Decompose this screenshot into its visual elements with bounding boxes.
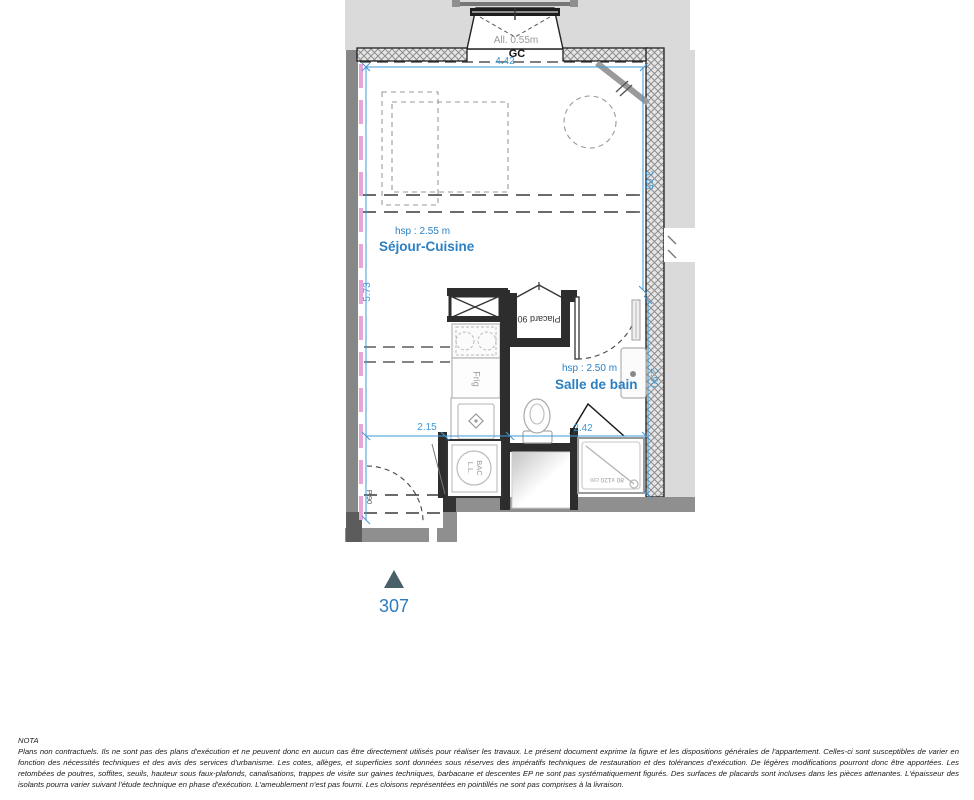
dim-height-left: 5.73 bbox=[362, 282, 373, 302]
placard-label: Placard 90 bbox=[517, 314, 560, 324]
entrance-triangle-marker bbox=[384, 570, 404, 588]
washer-jamb bbox=[438, 432, 447, 498]
shower-jamb bbox=[570, 428, 578, 510]
nota-block: NOTA Plans non contractuels. Ils ne sont… bbox=[18, 736, 959, 791]
nota-body: Plans non contractuels. Ils ne sont pas … bbox=[18, 747, 959, 791]
sejour-height-label: hsp : 2.55 m bbox=[395, 226, 450, 237]
window-sill-label: All. 0.55m bbox=[494, 35, 538, 46]
shower-size-label: 80 x120 cm bbox=[590, 476, 624, 483]
floor-plan-drawing: Frig Placard 90 BACL.L. 80 x120 cm P.90 bbox=[0, 0, 974, 730]
dim-width-bottom-left: 2.15 bbox=[417, 422, 437, 433]
dim-height-right-lower: 2.90 bbox=[648, 368, 659, 388]
bathroom-door-leaf bbox=[575, 297, 579, 359]
wall-corridor-jamb bbox=[437, 528, 455, 542]
nota-title: NOTA bbox=[18, 736, 959, 745]
fridge-label: Frig bbox=[472, 371, 482, 387]
wc-support-box bbox=[512, 452, 572, 508]
kitchen-counter-wall bbox=[447, 316, 508, 322]
placard-wall-left bbox=[510, 293, 517, 345]
gc-label: GC bbox=[509, 48, 526, 60]
bathroom-height-label: hsp : 2.50 m bbox=[562, 363, 617, 374]
wall-top-right bbox=[563, 48, 648, 61]
dim-width-bottom-right: 2.42 bbox=[573, 423, 593, 434]
window-outer-rail bbox=[452, 2, 578, 6]
dim-height-right-upper: 3.65 bbox=[643, 170, 654, 190]
placard-wall-right bbox=[561, 293, 570, 345]
floor-plan-page: Frig Placard 90 BACL.L. 80 x120 cm P.90 bbox=[0, 0, 974, 800]
placard-wall-bottom bbox=[510, 338, 570, 347]
wall-joint-notch bbox=[664, 228, 695, 262]
window-rail-end-left bbox=[452, 0, 460, 7]
room-label-sejour: Séjour-Cuisine bbox=[379, 239, 475, 254]
wall-top-left bbox=[357, 48, 467, 61]
cooktop bbox=[452, 324, 500, 358]
exterior-right bbox=[664, 50, 695, 502]
sink-drain-dot bbox=[474, 419, 477, 422]
washer-label: BACL.L. bbox=[466, 460, 484, 476]
room-label-bathroom: Salle de bain bbox=[555, 377, 638, 392]
wc-niche-wall bbox=[508, 443, 572, 452]
wall-right bbox=[646, 48, 664, 497]
unit-number: 307 bbox=[379, 596, 409, 616]
window-rail-end-right bbox=[570, 0, 578, 7]
party-wall-left bbox=[346, 50, 358, 542]
